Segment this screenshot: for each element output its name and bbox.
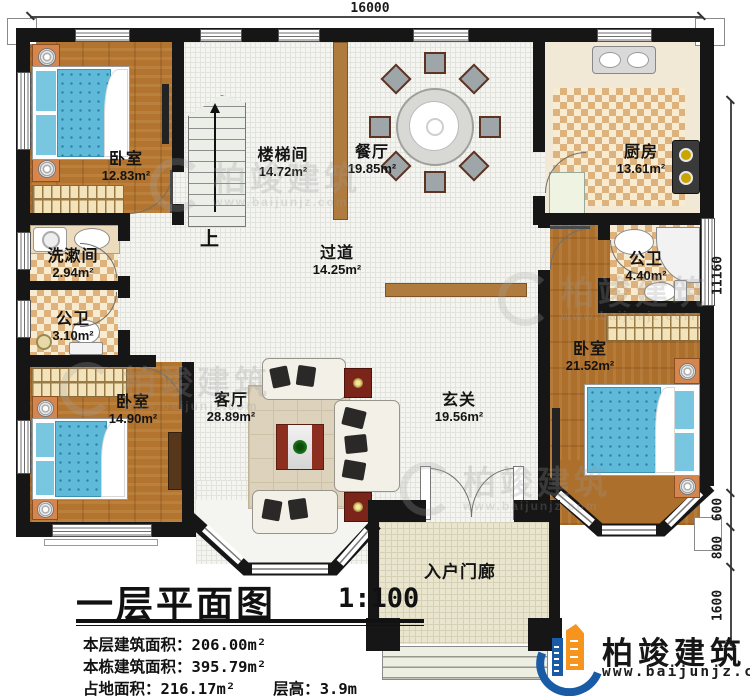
window-north-5 xyxy=(597,29,652,42)
room-label-wc1: 公卫3.10m² xyxy=(52,311,93,343)
room-area: 14.72m² xyxy=(257,165,308,180)
coffee-table-icon xyxy=(276,424,324,470)
throw-pillow xyxy=(261,499,282,522)
porch-pillar-left xyxy=(366,618,400,651)
room-name: 卧室 xyxy=(566,341,614,359)
pillow-icon xyxy=(674,432,695,472)
room-name: 公卫 xyxy=(52,311,93,329)
window-west-1 xyxy=(17,72,31,150)
dim-top-label: 16000 xyxy=(330,1,410,16)
room-label-kitchen: 厨房13.61m² xyxy=(617,144,665,176)
room-name: 入户门廊 xyxy=(424,562,496,581)
window-north-4 xyxy=(413,29,469,42)
stairs-icon xyxy=(188,95,246,227)
chair-icon xyxy=(424,171,446,193)
toilet-icon xyxy=(644,282,676,302)
door-leaf-bedroom2 xyxy=(550,226,590,229)
plan-scale: 1:100 xyxy=(338,583,419,614)
room-name: 客厅 xyxy=(207,392,255,410)
stat-floor-area: 本层建筑面积：206.00m² xyxy=(83,633,266,655)
stat-building-area: 本栋建筑面积：395.79m² xyxy=(83,655,266,677)
wardrobe-icon xyxy=(32,185,124,214)
stat-label: 层高： xyxy=(273,681,320,696)
logo-building-blue xyxy=(552,638,563,676)
burner-icon xyxy=(679,171,693,185)
title-underline-thin xyxy=(76,625,424,626)
mattress-icon xyxy=(587,387,661,473)
nightstand-icon xyxy=(674,358,700,384)
dim-800-label: 800 xyxy=(711,528,726,568)
pillow-icon xyxy=(35,422,55,458)
room-label-dining: 餐厅19.85m² xyxy=(348,144,396,176)
window-north-3 xyxy=(278,29,320,42)
mattress-icon xyxy=(55,421,107,497)
throw-pillow xyxy=(342,459,367,481)
dim-line-top xyxy=(30,16,702,18)
room-name: 卧室 xyxy=(109,394,157,412)
lamp-icon xyxy=(679,478,696,495)
stat-label: 占地面积： xyxy=(83,681,161,696)
sink-basin xyxy=(627,52,649,68)
mattress-icon xyxy=(57,69,111,157)
wall-wc2-south xyxy=(598,301,700,313)
window-south-bedroom3 xyxy=(52,524,152,537)
room-label-stairwell: 楼梯间14.72m² xyxy=(257,147,308,179)
wall-kitchen-west-a xyxy=(533,42,545,152)
room-label-foyer: 玄关19.56m² xyxy=(435,392,483,424)
floor-drain-icon xyxy=(36,334,52,350)
wall-washroom-east-a xyxy=(118,213,130,241)
nightstand-icon xyxy=(32,498,58,520)
room-label-corridor: 过道14.25m² xyxy=(313,245,361,277)
stat-label: 本栋建筑面积： xyxy=(83,659,192,676)
room-area: 14.90m² xyxy=(109,412,157,427)
room-name: 厨房 xyxy=(617,144,665,162)
room-area: 19.85m² xyxy=(348,162,396,177)
dim-line-right xyxy=(730,100,732,646)
pillow-icon xyxy=(35,460,55,496)
bed-sheet-icon xyxy=(101,421,125,497)
plant-icon xyxy=(293,440,307,454)
room-area: 21.52m² xyxy=(566,359,614,374)
wall-bedroom1-east xyxy=(172,42,184,172)
dining-table-icon xyxy=(396,88,474,166)
lamp-icon xyxy=(38,160,56,178)
wardrobe-icon xyxy=(31,368,127,397)
room-area: 3.10m² xyxy=(52,329,93,344)
wall-bedroom2-west-b xyxy=(538,270,550,522)
lamp-icon xyxy=(679,363,696,380)
lamp-icon xyxy=(38,48,56,66)
bed-sheet-icon xyxy=(104,69,128,157)
throw-pillow xyxy=(296,365,317,387)
wall-bedroom3-east xyxy=(182,362,194,522)
side-table-knob xyxy=(353,502,363,512)
stat-label: 本层建筑面积： xyxy=(83,637,192,654)
room-label-bedroom1: 卧室12.83m² xyxy=(102,151,150,183)
dim-1600-label: 1600 xyxy=(711,581,726,631)
brand-site: www.baijunjz.com xyxy=(602,664,750,680)
throw-pillow xyxy=(288,498,309,520)
room-area: 19.56m² xyxy=(435,410,483,425)
stove-icon xyxy=(672,140,700,194)
wall-washroom-wc1-divider xyxy=(30,281,118,290)
title-underline-thick xyxy=(76,619,424,623)
chair-icon xyxy=(479,116,501,138)
tv-icon xyxy=(552,408,560,486)
throw-pillow xyxy=(344,434,368,454)
dim-right-label: 11160 xyxy=(711,246,726,306)
side-table-knob xyxy=(353,378,363,388)
stat-value: 3.9m xyxy=(320,680,357,696)
logo-building-orange xyxy=(566,624,584,670)
room-label-living: 客厅28.89m² xyxy=(207,392,255,424)
wall-bedroom3-north xyxy=(130,355,156,367)
stat-value: 395.79m² xyxy=(192,658,267,676)
throw-pillow xyxy=(341,407,367,430)
wall-kitchen-south xyxy=(533,213,714,225)
room-name: 过道 xyxy=(313,245,361,263)
tv-cabinet-icon xyxy=(168,432,182,490)
dim-600-label: 600 xyxy=(711,490,726,530)
floor-plan-canvas: 上 xyxy=(0,0,750,696)
room-name: 餐厅 xyxy=(348,144,396,162)
throw-pillow xyxy=(269,365,291,388)
room-area: 14.25m² xyxy=(313,263,361,278)
partition-dining xyxy=(333,42,348,220)
stat-value: 216.17m² xyxy=(161,680,236,696)
stairs-arrow-head xyxy=(210,103,220,113)
washer-drum xyxy=(42,231,60,249)
partition-foyer xyxy=(385,283,527,297)
kitchen-sink-icon xyxy=(592,46,656,74)
pillow-icon xyxy=(674,390,695,430)
room-label-washroom: 洗漱间2.94m² xyxy=(47,248,98,280)
room-name: 洗漱间 xyxy=(47,248,98,266)
lamp-icon xyxy=(37,400,54,417)
wall-washroom-east-b xyxy=(118,276,130,298)
chair-icon xyxy=(369,116,391,138)
window-north-1 xyxy=(75,29,130,42)
wall-bedroom2-west-a xyxy=(538,213,550,228)
wardrobe-icon xyxy=(606,315,702,341)
room-area: 28.89m² xyxy=(207,410,255,425)
wall-wc2-west-a xyxy=(598,225,610,240)
room-area: 4.40m² xyxy=(625,269,666,284)
toilet-tank xyxy=(69,342,103,355)
room-label-bedroom3: 卧室14.90m² xyxy=(109,394,157,426)
window-west-3 xyxy=(17,300,31,338)
room-name: 玄关 xyxy=(435,392,483,410)
wall-wc1-south xyxy=(16,355,130,367)
dining-table-center xyxy=(426,118,444,136)
sink-basin xyxy=(599,52,621,68)
bed-sheet-icon xyxy=(655,387,675,473)
sofa-icon xyxy=(252,490,338,534)
stairs-arrow-line xyxy=(214,112,216,212)
window-west-2 xyxy=(17,232,31,270)
lamp-icon xyxy=(37,501,54,518)
room-area: 2.94m² xyxy=(47,266,98,281)
sofa-icon xyxy=(334,400,400,492)
stairs-up-label: 上 xyxy=(200,224,219,251)
brand-logo-icon xyxy=(540,622,598,686)
side-table-icon xyxy=(344,368,372,398)
burner-icon xyxy=(679,148,693,162)
room-name: 公卫 xyxy=(625,251,666,269)
window-west-4 xyxy=(17,420,31,474)
wall-bedroom1-south xyxy=(16,213,130,225)
wall-porch-east xyxy=(549,500,560,620)
chair-icon xyxy=(424,52,446,74)
room-label-porch: 入户门廊 xyxy=(424,562,496,581)
room-area: 13.61m² xyxy=(617,162,665,177)
tv-icon xyxy=(162,84,169,144)
wall-bedroom1-east-stub xyxy=(172,204,184,225)
room-label-bedroom2: 卧室21.52m² xyxy=(566,341,614,373)
room-name: 楼梯间 xyxy=(257,147,308,165)
window-north-2 xyxy=(200,29,242,42)
room-label-wc2: 公卫4.40m² xyxy=(625,251,666,283)
nightstand-icon xyxy=(674,474,700,498)
stat-footprint-height: 占地面积：216.17m²层高：3.9m xyxy=(83,677,357,696)
room-name: 卧室 xyxy=(102,151,150,169)
pillow-icon xyxy=(35,70,57,112)
sofa-icon xyxy=(262,358,346,400)
pillow-icon xyxy=(35,114,57,156)
nightstand-icon xyxy=(32,396,58,420)
room-area: 12.83m² xyxy=(102,169,150,184)
stat-value: 206.00m² xyxy=(192,636,267,654)
